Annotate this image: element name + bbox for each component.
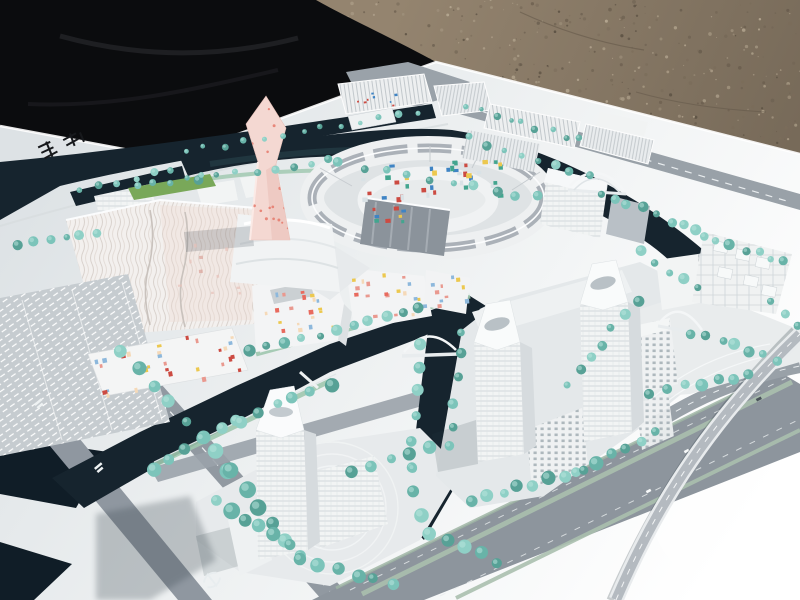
gravel-speckle <box>788 22 792 26</box>
tree-highlight <box>457 349 462 354</box>
gravel-speckle <box>537 22 540 25</box>
gravel-speckle <box>747 11 749 13</box>
scene <box>0 0 800 600</box>
tree-highlight <box>576 135 579 138</box>
tree-highlight <box>645 390 650 395</box>
south-tower-roof <box>269 407 293 417</box>
gravel-speckle <box>402 13 405 16</box>
gravel-speckle <box>515 72 517 74</box>
tree-highlight <box>730 375 735 380</box>
gravel-speckle <box>743 49 745 51</box>
tree-highlight <box>416 111 418 113</box>
gravel-speckle <box>758 56 759 57</box>
gravel-speckle <box>544 36 547 39</box>
mosaic-tile <box>439 299 443 302</box>
tree-highlight <box>388 455 392 459</box>
tree-highlight <box>667 270 670 273</box>
gravel-speckle <box>795 33 796 34</box>
gravel-speckle <box>558 10 560 12</box>
tree-highlight <box>295 554 301 560</box>
tree-highlight <box>233 169 236 172</box>
tree-highlight <box>185 176 187 178</box>
mosaic-tile <box>309 325 313 330</box>
gravel-speckle <box>703 99 706 102</box>
gravel-speckle <box>642 85 644 87</box>
gravel-speckle <box>350 2 354 6</box>
tree-highlight <box>466 134 469 137</box>
tree-highlight <box>416 340 421 345</box>
tree-highlight <box>652 428 656 432</box>
tree-highlight <box>347 467 353 473</box>
mosaic-tile <box>194 244 197 248</box>
gravel-speckle <box>619 97 622 100</box>
tree-highlight <box>721 338 724 341</box>
gravel-speckle <box>509 44 511 46</box>
gravel-speckle <box>784 139 785 140</box>
gravel-speckle <box>513 57 517 61</box>
gravel-speckle <box>725 58 726 59</box>
tree-highlight <box>744 371 749 376</box>
tree-highlight <box>494 188 499 193</box>
mosaic-tile <box>392 105 394 107</box>
gravel-speckle <box>745 45 748 48</box>
tree-highlight <box>272 167 276 171</box>
tree-highlight <box>396 111 400 115</box>
tree-highlight <box>532 127 535 130</box>
tree-highlight <box>135 183 138 186</box>
tree-highlight <box>241 483 249 491</box>
tree-highlight <box>612 196 616 200</box>
mosaic-tile <box>482 160 488 165</box>
gravel-speckle <box>605 100 608 103</box>
mosaic-tile <box>178 284 182 286</box>
mosaic-tile <box>278 321 282 324</box>
tree-highlight <box>359 121 361 123</box>
mosaic-tile <box>408 282 412 286</box>
tree-highlight <box>225 505 233 513</box>
mosaic-tile <box>382 196 387 200</box>
tree-highlight <box>725 240 730 245</box>
gravel-speckle <box>716 94 720 98</box>
gravel-speckle <box>660 38 663 41</box>
tree-highlight <box>334 564 340 570</box>
mosaic-tile <box>394 314 398 317</box>
tree-highlight <box>214 173 217 176</box>
gravel-speckle <box>608 8 612 12</box>
gravel-speckle <box>476 13 478 15</box>
tree-highlight <box>309 162 312 165</box>
mosaic-tile <box>371 92 374 94</box>
tree-highlight <box>654 211 657 214</box>
gravel-speckle <box>437 9 440 12</box>
tree-highlight <box>458 330 462 334</box>
tree-highlight <box>519 119 521 121</box>
tree-highlight <box>404 172 408 176</box>
gravel-speckle <box>373 14 375 16</box>
tree-highlight <box>565 382 568 385</box>
tree-highlight <box>325 156 329 160</box>
gravel-speckle <box>659 101 662 104</box>
gravel-speckle <box>771 26 773 28</box>
gravel-speckle <box>619 18 621 20</box>
gravel-speckle <box>520 63 523 66</box>
gravel-speckle <box>466 38 469 41</box>
mosaic-dot <box>271 206 274 209</box>
gravel-speckle <box>363 11 365 13</box>
mosaic-tile <box>372 208 375 211</box>
tree-highlight <box>223 145 226 148</box>
gravel-speckle <box>669 93 672 96</box>
tree-highlight <box>599 342 603 346</box>
mosaic-tile <box>437 304 441 308</box>
gravel-speckle <box>524 32 526 34</box>
tree-highlight <box>240 515 246 521</box>
tree-highlight <box>376 115 379 118</box>
gravel-speckle <box>742 28 746 32</box>
mosaic-tile <box>399 215 403 218</box>
gravel-speckle <box>674 26 677 29</box>
mosaic-dot <box>259 209 262 212</box>
gravel-speckle <box>610 79 613 82</box>
tree-highlight <box>369 574 373 578</box>
gravel-speckle <box>693 116 695 118</box>
mosaic-tile <box>457 172 462 176</box>
mosaic-tile <box>236 286 240 289</box>
gravel-speckle <box>490 6 493 9</box>
gravel-speckle <box>693 74 695 76</box>
gravel-speckle <box>635 30 637 32</box>
gravel-speckle <box>561 67 564 70</box>
gravel-speckle <box>605 20 608 23</box>
tree-highlight <box>333 326 338 331</box>
tree-highlight <box>528 482 533 487</box>
tree-highlight <box>254 520 260 526</box>
mosaic-tile <box>318 307 322 310</box>
tree-highlight <box>409 465 413 469</box>
gravel-speckle <box>590 46 592 48</box>
tree-highlight <box>495 114 498 117</box>
mosaic-tile <box>308 310 313 315</box>
gravel-speckle <box>758 114 760 116</box>
gravel-speckle <box>776 142 778 144</box>
tree-highlight <box>608 325 611 328</box>
gravel-speckle <box>534 21 535 22</box>
tree-highlight <box>564 136 567 139</box>
gravel-speckle <box>473 20 476 23</box>
tree-highlight <box>280 535 286 541</box>
tree-highlight <box>572 469 576 473</box>
mosaic-tile <box>374 215 379 218</box>
tree-highlight <box>134 177 137 180</box>
gravel-speckle <box>499 47 501 49</box>
mosaic-tile <box>394 180 399 184</box>
model-photo <box>0 0 800 600</box>
gravel-speckle <box>655 19 658 22</box>
gravel-speckle <box>512 75 516 79</box>
tree-highlight <box>652 260 655 263</box>
gravel-speckle <box>787 138 789 140</box>
gravel-speckle <box>520 6 523 9</box>
gravel-speckle <box>536 3 539 6</box>
tree-highlight <box>452 181 455 184</box>
gravel-speckle <box>763 85 766 88</box>
gravel-speckle <box>619 55 622 58</box>
gravel-speckle <box>509 64 510 65</box>
tree-highlight <box>599 192 602 195</box>
gravel-speckle <box>650 113 652 115</box>
gravel-speckle <box>689 81 693 85</box>
tree-highlight <box>638 438 642 442</box>
gravel-speckle <box>672 68 674 70</box>
mosaic-tile <box>403 291 407 296</box>
tree-highlight <box>404 449 410 455</box>
mosaic-tile <box>297 323 300 326</box>
gravel-speckle <box>531 2 534 5</box>
gravel-speckle <box>594 51 596 53</box>
tree-highlight <box>757 249 761 253</box>
gravel-speckle <box>673 89 674 90</box>
mosaic-tile <box>405 184 409 189</box>
gravel-speckle <box>735 35 736 36</box>
tree-highlight <box>427 178 430 181</box>
mosaic-tile <box>464 185 469 189</box>
tree-highlight <box>697 380 703 386</box>
tree-highlight <box>14 241 19 246</box>
gravel-speckle <box>648 26 651 29</box>
mosaic-tile <box>466 173 472 178</box>
tree-highlight <box>168 181 171 184</box>
tree-highlight <box>480 108 482 110</box>
tree-highlight <box>201 144 203 146</box>
mosaic-tile <box>385 175 391 180</box>
tree-highlight <box>536 159 539 162</box>
tree <box>317 124 323 130</box>
gravel-speckle <box>639 66 641 68</box>
tree-highlight <box>483 142 487 146</box>
gravel-speckle <box>538 28 539 29</box>
mosaic-tile <box>414 297 418 301</box>
tree-highlight <box>291 164 294 167</box>
gravel-speckle <box>633 22 636 25</box>
tree-highlight <box>637 247 642 252</box>
gravel-speckle <box>515 68 518 71</box>
gravel-speckle <box>527 78 529 80</box>
tree-highlight <box>198 434 203 439</box>
tree-highlight <box>464 105 466 107</box>
tree-highlight <box>446 442 450 446</box>
gravel-speckle <box>612 74 614 76</box>
gravel-speckle <box>709 68 711 70</box>
mosaic-tile <box>361 178 365 181</box>
mosaic-tile <box>462 285 465 289</box>
tree-highlight <box>212 496 217 501</box>
tree-highlight <box>635 297 640 302</box>
gravel-speckle <box>620 63 623 66</box>
gravel-speckle <box>449 6 451 8</box>
mosaic-tile <box>430 167 434 171</box>
gravel-speckle <box>682 116 684 118</box>
gravel-speckle <box>470 35 472 37</box>
gravel-speckle <box>680 9 683 12</box>
mosaic-tile <box>352 278 356 282</box>
mosaic-tile <box>365 294 369 297</box>
mosaic-tile <box>432 170 437 175</box>
tree-highlight <box>339 125 341 127</box>
gravel-speckle <box>513 48 516 51</box>
mosaic-tile <box>362 197 368 202</box>
gravel-speckle <box>762 81 765 84</box>
mosaic-tile <box>396 289 400 293</box>
tree-highlight <box>561 472 566 477</box>
tree-highlight <box>255 170 258 173</box>
gravel-speckle <box>762 136 765 139</box>
tree-highlight <box>621 310 626 315</box>
tree-highlight <box>702 332 706 336</box>
mosaic-tile <box>316 299 319 303</box>
gravel-speckle <box>665 55 668 58</box>
gravel-speckle <box>646 103 648 105</box>
gravel-speckle <box>789 13 790 14</box>
mosaic-tile <box>312 297 315 301</box>
gravel-speckle <box>779 137 782 140</box>
gravel-speckle <box>585 88 586 89</box>
mosaic-tile <box>366 282 370 287</box>
gravel-speckle <box>517 4 519 6</box>
tree-highlight <box>318 334 321 337</box>
gravel-speckle <box>794 124 797 127</box>
tree-highlight <box>566 168 570 172</box>
gravel-speckle <box>750 3 752 5</box>
gravel-speckle <box>405 33 407 35</box>
gravel-speckle <box>684 44 686 46</box>
gravel-speckle <box>539 71 542 74</box>
mosaic-tile <box>354 293 359 297</box>
mosaic-tile <box>421 188 426 193</box>
tree-highlight <box>511 193 515 197</box>
tree-highlight <box>334 158 338 162</box>
mosaic-tile <box>367 99 369 101</box>
mosaic-dot <box>268 108 270 110</box>
tree-highlight <box>415 363 420 368</box>
mosaic-tile <box>460 180 464 185</box>
tree-highlight <box>510 119 512 121</box>
gravel-speckle <box>394 10 397 13</box>
tree-highlight <box>450 424 454 428</box>
gravel-speckle <box>716 103 717 104</box>
gravel-speckle <box>678 43 680 45</box>
gravel-speckle <box>697 50 699 52</box>
louver-slab <box>434 82 492 116</box>
mosaic-tile <box>494 160 498 164</box>
tree-highlight <box>669 219 673 223</box>
gravel-speckle <box>758 28 760 30</box>
tree-highlight <box>715 375 720 380</box>
tree-highlight <box>65 235 68 238</box>
tree-highlight <box>744 248 748 252</box>
tree-highlight <box>580 467 584 471</box>
mosaic-tile <box>211 292 214 294</box>
gravel-speckle <box>566 89 570 93</box>
tree-highlight <box>416 510 423 517</box>
gravel-speckle <box>784 126 787 129</box>
gravel-speckle <box>568 61 570 63</box>
gravel-speckle <box>547 65 549 67</box>
tree-highlight <box>639 203 644 208</box>
tree-highlight <box>680 274 685 279</box>
gravel-speckle <box>715 79 716 80</box>
tree-highlight <box>180 445 185 450</box>
gravel-speckle <box>622 82 623 83</box>
tree-highlight <box>134 363 140 369</box>
gravel-speckle <box>479 5 482 8</box>
tree-highlight <box>587 172 591 176</box>
tree-highlight <box>768 257 771 260</box>
gravel-speckle <box>738 66 742 70</box>
gravel-speckle <box>460 19 462 21</box>
tree-highlight <box>367 462 372 467</box>
mosaic-dot <box>272 217 275 220</box>
tree-highlight <box>48 236 52 240</box>
gravel-speckle <box>645 63 648 66</box>
mosaic-dot <box>268 207 271 210</box>
gravel-speckle <box>465 58 466 59</box>
gravel-speckle <box>628 38 631 41</box>
gravel-speckle <box>788 96 792 100</box>
tree-highlight <box>236 418 242 424</box>
mosaic-tile <box>400 195 404 200</box>
gravel-speckle <box>612 58 613 59</box>
gravel-speckle <box>533 64 534 65</box>
mosaic-tile <box>498 162 502 166</box>
tree-highlight <box>502 149 504 151</box>
tree-highlight <box>245 346 251 352</box>
gravel-speckle <box>446 13 449 16</box>
mosaic-tile <box>389 164 395 167</box>
tree-highlight <box>149 464 156 471</box>
mosaic-tile <box>357 101 359 103</box>
tree-highlight <box>577 366 582 371</box>
gravel-speckle <box>759 18 761 20</box>
mosaic-tile <box>319 310 322 313</box>
mosaic-tile <box>165 368 169 372</box>
gravel-speckle <box>710 70 713 73</box>
gravel-speckle <box>578 89 581 92</box>
gravel-speckle <box>636 15 638 17</box>
tree-highlight <box>459 541 465 547</box>
mosaic-tile <box>401 220 404 223</box>
tree-highlight <box>468 497 473 502</box>
mosaic-tile <box>265 312 268 316</box>
gravel-speckle <box>569 15 571 17</box>
mosaic-tile <box>433 190 436 195</box>
tree-highlight <box>443 535 449 541</box>
tree-highlight <box>351 322 355 326</box>
gravel-speckle <box>753 74 755 76</box>
gravel-speckle <box>789 121 791 123</box>
mosaic-tile <box>361 279 364 284</box>
tree-highlight <box>552 161 556 165</box>
gravel-speckle <box>491 36 493 38</box>
gravel-speckle <box>453 9 455 11</box>
tree-highlight <box>199 173 202 176</box>
gravel-speckle <box>564 27 565 28</box>
gravel-speckle <box>579 18 580 19</box>
gravel-speckle <box>792 94 795 97</box>
gravel-speckle <box>755 45 758 48</box>
tree-highlight <box>413 412 417 416</box>
tree-highlight <box>745 348 750 353</box>
gravel-speckle <box>657 15 659 17</box>
